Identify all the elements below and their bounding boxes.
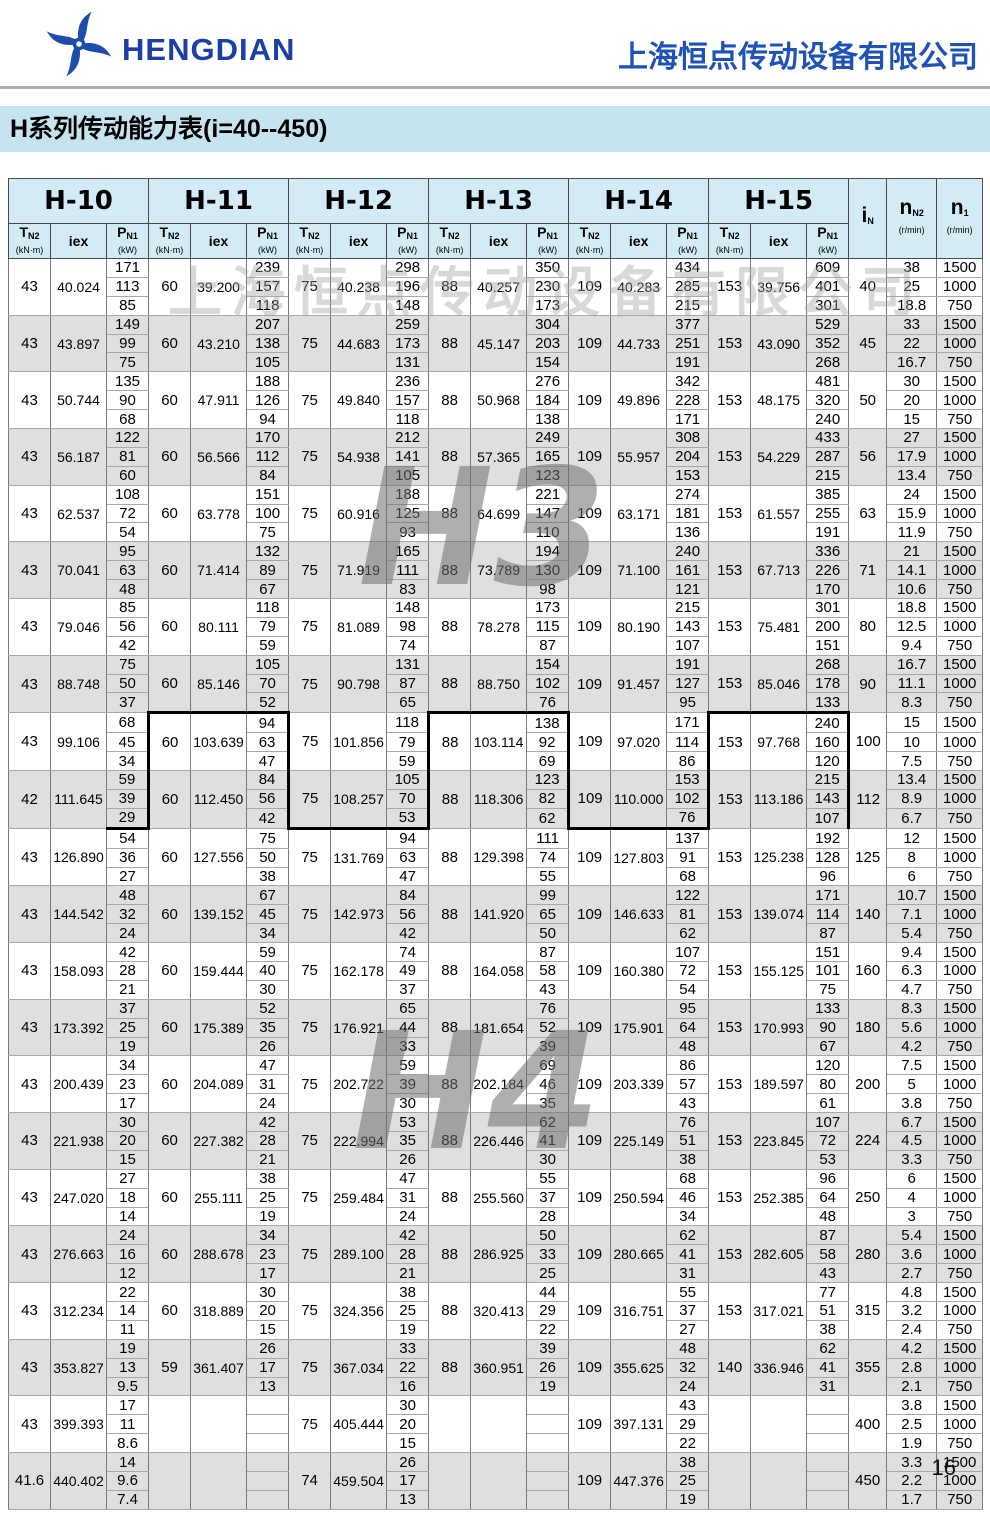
iex-cell: 103.114 (471, 713, 527, 771)
n1-cell: 1000 (937, 277, 983, 296)
in-cell: 140 (849, 886, 887, 943)
pn1-cell: 75 (107, 655, 149, 674)
in-cell: 180 (849, 999, 887, 1056)
model-header-h-15: H-15 (709, 179, 849, 224)
pn1-cell: 115 (527, 617, 569, 636)
tn2-cell: 109 (569, 1396, 611, 1453)
pn1-cell: 118 (247, 296, 289, 315)
pn1-cell: 59 (387, 752, 429, 771)
pn1-cell: 68 (667, 867, 709, 886)
n1-cell: 1000 (937, 1245, 983, 1264)
pn1-cell: 14 (107, 1207, 149, 1226)
pn1-cell: 50 (527, 924, 569, 943)
n1-cell: 1500 (937, 1226, 983, 1245)
nn2-cell: 6.3 (887, 961, 937, 980)
tn2-cell: 153 (709, 485, 751, 542)
iex-cell: 97.020 (611, 713, 667, 771)
pn1-cell: 42 (247, 1113, 289, 1132)
tn2-cell: 153 (709, 999, 751, 1056)
iex-cell: 139.152 (191, 886, 247, 943)
tn2-cell: 60 (149, 1056, 191, 1113)
pn1-cell: 15 (107, 1150, 149, 1169)
tn2-cell: 43 (9, 1056, 51, 1113)
pn1-cell: 336 (807, 542, 849, 561)
pn1-cell (247, 1453, 289, 1472)
nn2-cell: 20 (887, 391, 937, 410)
iex-cell: 71.919 (331, 542, 387, 599)
pn1-cell: 9.6 (107, 1472, 149, 1491)
header-in: iN (849, 179, 887, 259)
nn2-cell: 14.1 (887, 561, 937, 580)
pn1-cell: 96 (807, 1169, 849, 1188)
tn2-cell: 60 (149, 771, 191, 829)
pn1-cell: 105 (247, 353, 289, 372)
pn1-cell: 34 (107, 1056, 149, 1075)
tn2-cell (709, 1396, 751, 1453)
pn1-cell: 151 (247, 485, 289, 504)
pn1-cell: 285 (667, 277, 709, 296)
pn1-cell: 42 (247, 808, 289, 828)
pn1-cell: 74 (527, 848, 569, 867)
tn2-cell: 88 (429, 886, 471, 943)
tn2-cell: 88 (429, 429, 471, 486)
header-pn1: PN1(kW) (667, 224, 709, 259)
pn1-cell: 107 (807, 808, 849, 828)
n1-cell: 1500 (937, 542, 983, 561)
tn2-cell: 75 (289, 1056, 331, 1113)
tn2-cell: 109 (569, 999, 611, 1056)
pn1-cell (247, 1472, 289, 1491)
iex-cell: 288.678 (191, 1226, 247, 1283)
page-number: 16 (932, 1455, 956, 1481)
nn2-cell: 3.6 (887, 1245, 937, 1264)
iex-cell: 63.778 (191, 485, 247, 542)
pn1-cell: 529 (807, 315, 849, 334)
n1-cell: 1000 (937, 1018, 983, 1037)
pn1-cell: 64 (807, 1188, 849, 1207)
iex-cell: 112.450 (191, 771, 247, 829)
iex-cell (471, 1396, 527, 1453)
pn1-cell: 81 (107, 447, 149, 466)
iex-cell: 57.365 (471, 429, 527, 486)
pn1-cell: 72 (667, 961, 709, 980)
pn1-cell: 59 (107, 771, 149, 790)
n1-cell: 1500 (937, 1056, 983, 1075)
pn1-cell: 25 (107, 1018, 149, 1037)
n1-cell: 750 (937, 1264, 983, 1283)
n1-cell: 1000 (937, 1415, 983, 1434)
nn2-cell: 2.7 (887, 1264, 937, 1283)
nn2-cell: 10 (887, 733, 937, 752)
nn2-cell: 16.7 (887, 655, 937, 674)
iex-cell: 204.089 (191, 1056, 247, 1113)
pn1-cell: 268 (807, 353, 849, 372)
iex-cell: 127.556 (191, 828, 247, 886)
pn1-cell: 31 (667, 1264, 709, 1283)
pn1-cell: 274 (667, 485, 709, 504)
in-cell: 315 (849, 1283, 887, 1340)
table-row: 4362.5371086063.7781517560.9161888864.69… (9, 485, 983, 504)
pn1-cell: 74 (387, 943, 429, 962)
pn1-cell: 133 (807, 693, 849, 713)
tn2-cell: 109 (569, 485, 611, 542)
pn1-cell: 16 (107, 1245, 149, 1264)
n1-cell: 1000 (937, 334, 983, 353)
pn1-cell: 44 (527, 1283, 569, 1302)
pn1-cell: 39 (387, 1075, 429, 1094)
n1-cell: 1000 (937, 447, 983, 466)
n1-cell: 750 (937, 1150, 983, 1169)
tn2-cell: 153 (709, 771, 751, 829)
pn1-cell (247, 1415, 289, 1434)
header-iex: iex (331, 224, 387, 259)
pn1-cell: 221 (527, 485, 569, 504)
pn1-cell: 304 (527, 315, 569, 334)
pn1-cell: 37 (107, 693, 149, 713)
pn1-cell: 25 (667, 1472, 709, 1491)
pn1-cell: 102 (667, 789, 709, 808)
header-row-subcolumns: TN2(kN·m)iexPN1(kW)TN2(kN·m)iexPN1(kW)TN… (9, 224, 983, 259)
tn2-cell: 88 (429, 1169, 471, 1226)
table-row: 43173.3923760175.3895275176.9216588181.6… (9, 999, 983, 1018)
tn2-cell: 88 (429, 1113, 471, 1170)
pn1-cell: 41 (527, 1131, 569, 1150)
nn2-cell: 15 (887, 713, 937, 733)
pn1-cell: 171 (667, 410, 709, 429)
n1-cell: 1000 (937, 1075, 983, 1094)
pn1-cell: 96 (807, 867, 849, 886)
pn1-cell: 90 (807, 1018, 849, 1037)
pn1-cell: 94 (247, 713, 289, 733)
pn1-cell: 114 (807, 905, 849, 924)
n1-cell: 750 (937, 1377, 983, 1396)
n1-cell: 1000 (937, 1358, 983, 1377)
iex-cell: 125.238 (751, 828, 807, 886)
pn1-cell: 53 (387, 1113, 429, 1132)
pn1-cell: 48 (107, 580, 149, 599)
tn2-cell: 88 (429, 1056, 471, 1113)
pn1-cell: 153 (667, 771, 709, 790)
pn1-cell: 170 (807, 580, 849, 599)
pn1-cell: 196 (387, 277, 429, 296)
nn2-cell: 4.8 (887, 1283, 937, 1302)
tn2-cell: 153 (709, 655, 751, 713)
tn2-cell: 109 (569, 1226, 611, 1283)
pn1-cell: 72 (807, 1131, 849, 1150)
tn2-cell: 109 (569, 1453, 611, 1510)
iex-cell: 164.058 (471, 943, 527, 1000)
pn1-cell: 13 (247, 1377, 289, 1396)
pn1-cell: 76 (667, 1113, 709, 1132)
pn1-cell: 54 (667, 980, 709, 999)
nn2-cell: 3.2 (887, 1301, 937, 1320)
header-pn1: PN1(kW) (107, 224, 149, 259)
iex-cell: 176.921 (331, 999, 387, 1056)
pn1-cell: 120 (807, 1056, 849, 1075)
nn2-cell: 4 (887, 1188, 937, 1207)
nn2-cell: 22 (887, 334, 937, 353)
pn1-cell: 401 (807, 277, 849, 296)
pn1-cell: 63 (387, 848, 429, 867)
pn1-cell: 130 (527, 561, 569, 580)
pn1-cell: 107 (667, 636, 709, 655)
iex-cell: 203.339 (611, 1056, 667, 1113)
iex-cell: 160.380 (611, 943, 667, 1000)
pn1-cell (807, 1434, 849, 1453)
iex-cell: 56.187 (51, 429, 107, 486)
pn1-cell (247, 1396, 289, 1415)
pn1-cell: 75 (247, 828, 289, 848)
pn1-cell: 87 (807, 1226, 849, 1245)
nn2-cell: 4.2 (887, 1037, 937, 1056)
pn1-cell: 59 (247, 943, 289, 962)
tn2-cell: 60 (149, 372, 191, 429)
pn1-cell: 60 (107, 466, 149, 485)
pn1-cell: 32 (107, 905, 149, 924)
tn2-cell: 109 (569, 1113, 611, 1170)
model-header-h-13: H-13 (429, 179, 569, 224)
in-cell: 56 (849, 429, 887, 486)
iex-cell: 399.393 (51, 1396, 107, 1453)
table-row: 4388.748756085.1461057590.7981318888.750… (9, 655, 983, 674)
iex-cell: 70.041 (51, 542, 107, 599)
iex-cell: 312.234 (51, 1283, 107, 1340)
pn1-cell: 203 (527, 334, 569, 353)
pn1-cell: 31 (387, 1188, 429, 1207)
pn1-cell (807, 1490, 849, 1509)
iex-cell: 259.484 (331, 1169, 387, 1226)
tn2-cell: 88 (429, 713, 471, 771)
top-header: HENGDIAN 上海恒点传动设备有限公司 (0, 0, 990, 86)
pn1-cell: 23 (247, 1245, 289, 1264)
iex-cell: 63.171 (611, 485, 667, 542)
iex-cell: 90.798 (331, 655, 387, 713)
table-row: 4350.7441356047.9111887549.8402368850.96… (9, 372, 983, 391)
pn1-cell: 29 (667, 1415, 709, 1434)
pn1-cell: 75 (107, 353, 149, 372)
pn1-cell: 45 (107, 733, 149, 752)
pn1-cell: 57 (667, 1075, 709, 1094)
tn2-cell (149, 1453, 191, 1510)
pn1-cell: 135 (107, 372, 149, 391)
pn1-cell: 215 (667, 296, 709, 315)
in-cell: 355 (849, 1339, 887, 1396)
iex-cell: 355.625 (611, 1339, 667, 1396)
pn1-cell: 63 (247, 733, 289, 752)
iex-cell: 405.444 (331, 1396, 387, 1453)
iex-cell: 162.178 (331, 943, 387, 1000)
tn2-cell: 109 (569, 828, 611, 886)
pn1-cell: 352 (807, 334, 849, 353)
pn1-cell: 43 (667, 1094, 709, 1113)
pn1-cell: 226 (807, 561, 849, 580)
pn1-cell (247, 1434, 289, 1453)
pn1-cell: 249 (527, 429, 569, 448)
pn1-cell: 38 (387, 1283, 429, 1302)
pn1-cell: 26 (247, 1339, 289, 1358)
tn2-cell: 153 (709, 542, 751, 599)
pn1-cell: 204 (667, 447, 709, 466)
pn1-cell: 48 (107, 886, 149, 905)
table-row: 4356.1871226056.5661707554.9382128857.36… (9, 429, 983, 448)
pn1-cell: 54 (107, 523, 149, 542)
iex-cell: 43.210 (191, 315, 247, 372)
pn1-cell: 125 (387, 504, 429, 523)
iex-cell: 225.149 (611, 1113, 667, 1170)
pn1-cell: 107 (807, 1113, 849, 1132)
pn1-cell: 19 (667, 1490, 709, 1509)
pn1-cell: 17 (107, 1396, 149, 1415)
tn2-cell: 43 (9, 1226, 51, 1283)
table-row: 43399.3931775405.44430109397.131434003.8… (9, 1396, 983, 1415)
pn1-cell: 39 (107, 789, 149, 808)
pn1-cell: 52 (247, 693, 289, 713)
pn1-cell: 136 (667, 523, 709, 542)
tn2-cell: 60 (149, 886, 191, 943)
header-nn2: nN2(r/min) (887, 179, 937, 259)
n1-cell: 750 (937, 980, 983, 999)
iex-cell: 75.481 (751, 599, 807, 656)
pn1-cell: 33 (527, 1245, 569, 1264)
in-cell: 63 (849, 485, 887, 542)
pn1-cell: 16 (387, 1377, 429, 1396)
pn1-cell: 137 (667, 828, 709, 848)
pn1-cell: 105 (387, 771, 429, 790)
pn1-cell: 111 (527, 828, 569, 848)
pn1-cell: 48 (667, 1339, 709, 1358)
iex-cell: 173.392 (51, 999, 107, 1056)
iex-cell: 60.916 (331, 485, 387, 542)
pn1-cell: 240 (807, 713, 849, 733)
pn1-cell: 173 (527, 296, 569, 315)
tn2-cell: 59 (149, 1339, 191, 1396)
pn1-cell: 157 (387, 391, 429, 410)
pn1-cell: 126 (247, 391, 289, 410)
tn2-cell: 60 (149, 713, 191, 771)
pn1-cell: 52 (527, 1018, 569, 1037)
pn1-cell: 41 (667, 1245, 709, 1264)
pn1-cell: 43 (527, 980, 569, 999)
pn1-cell: 26 (527, 1358, 569, 1377)
pn1-cell: 40 (247, 961, 289, 980)
header-iex: iex (471, 224, 527, 259)
pn1-cell: 298 (387, 259, 429, 278)
pn1-cell: 47 (387, 1169, 429, 1188)
table-row: 4343.8971496043.2102077544.6832598845.14… (9, 315, 983, 334)
nn2-cell: 18.8 (887, 599, 937, 618)
pn1-cell: 138 (527, 713, 569, 733)
nn2-cell: 8.3 (887, 999, 937, 1018)
pn1-cell: 61 (807, 1094, 849, 1113)
pn1-cell: 34 (247, 1226, 289, 1245)
n1-cell: 1000 (937, 504, 983, 523)
nn2-cell: 13.4 (887, 771, 937, 790)
pn1-cell: 63 (107, 561, 149, 580)
pn1-cell: 80 (807, 1075, 849, 1094)
header-tn2: TN2(kN·m) (569, 224, 611, 259)
iex-cell: 55.957 (611, 429, 667, 486)
iex-cell: 189.597 (751, 1056, 807, 1113)
tn2-cell: 43 (9, 1283, 51, 1340)
pn1-cell: 251 (667, 334, 709, 353)
nn2-cell: 5 (887, 1075, 937, 1094)
pn1-cell: 121 (667, 580, 709, 599)
pn1-cell: 50 (527, 1226, 569, 1245)
pn1-cell: 173 (527, 599, 569, 618)
pn1-cell: 77 (807, 1283, 849, 1302)
pn1-cell: 28 (527, 1207, 569, 1226)
iex-cell (751, 1453, 807, 1510)
tn2-cell (429, 1453, 471, 1510)
pn1-cell: 184 (527, 391, 569, 410)
pn1-cell: 86 (667, 752, 709, 771)
table-row: 43353.8271959361.4072675367.0343388360.9… (9, 1339, 983, 1358)
tn2-cell: 153 (709, 372, 751, 429)
n1-cell: 750 (937, 466, 983, 485)
iex-cell: 62.537 (51, 485, 107, 542)
tn2-cell: 109 (569, 943, 611, 1000)
pn1-cell: 22 (107, 1283, 149, 1302)
pn1-cell: 37 (527, 1188, 569, 1207)
tn2-cell: 60 (149, 429, 191, 486)
tn2-cell: 153 (709, 713, 751, 771)
pn1-cell: 75 (807, 980, 849, 999)
pn1-cell: 191 (667, 655, 709, 674)
pn1-cell: 22 (667, 1434, 709, 1453)
pn1-cell: 82 (527, 789, 569, 808)
pn1-cell: 350 (527, 259, 569, 278)
iex-cell: 316.751 (611, 1283, 667, 1340)
iex-cell: 85.046 (751, 655, 807, 713)
in-cell: 50 (849, 372, 887, 429)
n1-cell: 750 (937, 1094, 983, 1113)
pn1-cell: 148 (387, 599, 429, 618)
pn1-cell: 84 (247, 771, 289, 790)
n1-cell: 1500 (937, 1339, 983, 1358)
pn1-cell: 154 (527, 353, 569, 372)
n1-cell: 1500 (937, 771, 983, 790)
pn1-cell: 25 (527, 1264, 569, 1283)
pn1-cell: 93 (387, 523, 429, 542)
n1-cell: 750 (937, 296, 983, 315)
pn1-cell: 24 (387, 1207, 429, 1226)
pn1-cell: 230 (527, 277, 569, 296)
pn1-cell: 128 (807, 848, 849, 867)
nn2-cell: 3 (887, 1207, 937, 1226)
model-header-h-14: H-14 (569, 179, 709, 224)
tn2-cell: 75 (289, 713, 331, 771)
pn1-cell: 151 (807, 636, 849, 655)
tn2-cell: 153 (709, 315, 751, 372)
pn1-cell: 165 (527, 447, 569, 466)
pn1-cell: 21 (247, 1150, 289, 1169)
tn2-cell: 109 (569, 1283, 611, 1340)
pn1-cell: 212 (387, 429, 429, 448)
tn2-cell: 41.6 (9, 1453, 51, 1510)
tn2-cell: 153 (709, 1226, 751, 1283)
tn2-cell: 75 (289, 259, 331, 316)
tn2-cell: 75 (289, 315, 331, 372)
pn1-cell: 42 (387, 1226, 429, 1245)
pn1-cell: 24 (107, 1226, 149, 1245)
tn2-cell: 153 (709, 1283, 751, 1340)
pn1-cell: 157 (247, 277, 289, 296)
pn1-cell: 90 (107, 391, 149, 410)
pn1-cell: 46 (667, 1188, 709, 1207)
nn2-cell: 16.7 (887, 353, 937, 372)
iex-cell: 49.840 (331, 372, 387, 429)
pn1-cell: 173 (387, 334, 429, 353)
